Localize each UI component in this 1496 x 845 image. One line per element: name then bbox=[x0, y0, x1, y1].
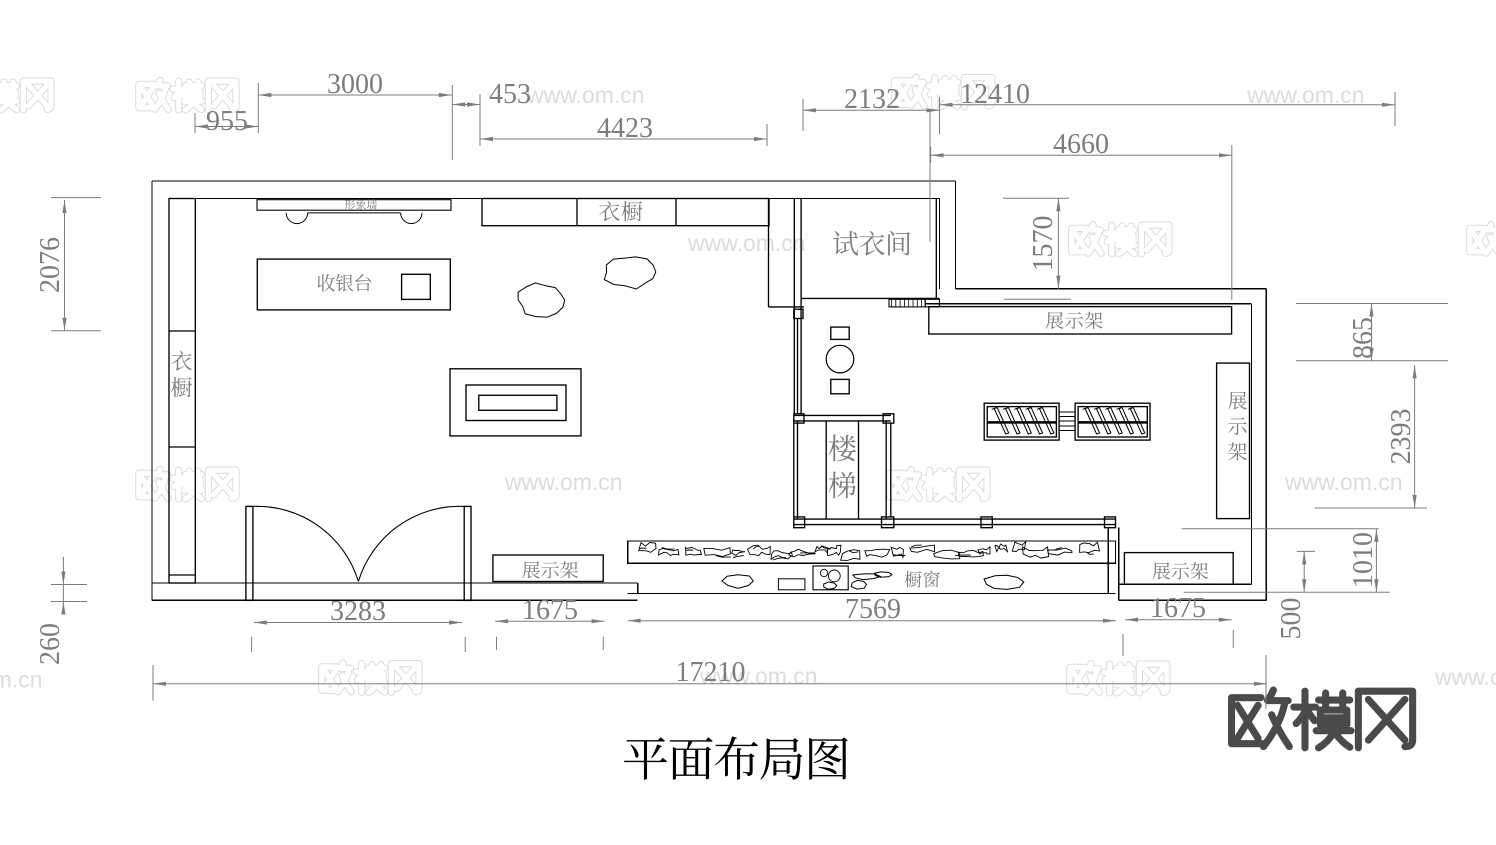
svg-text:7569: 7569 bbox=[845, 594, 901, 625]
svg-text:www.om.cn: www.om.cn bbox=[1246, 82, 1365, 108]
svg-text:1570: 1570 bbox=[1028, 216, 1059, 272]
svg-text:www.om.cn: www.om.cn bbox=[0, 667, 43, 693]
svg-text:www.om.cn: www.om.cn bbox=[1284, 469, 1403, 495]
svg-text:4660: 4660 bbox=[1053, 129, 1109, 160]
svg-text:4423: 4423 bbox=[597, 113, 653, 144]
svg-text:17210: 17210 bbox=[676, 657, 746, 688]
svg-text:www.om.cn: www.om.cn bbox=[504, 469, 623, 495]
svg-text:3283: 3283 bbox=[330, 596, 386, 627]
svg-text:www.om.cn: www.om.cn bbox=[687, 230, 806, 256]
svg-text:2076: 2076 bbox=[35, 237, 66, 293]
svg-text:2393: 2393 bbox=[1386, 409, 1417, 465]
svg-text:2132: 2132 bbox=[844, 84, 900, 115]
svg-text:500: 500 bbox=[1276, 598, 1307, 640]
svg-text:955: 955 bbox=[206, 106, 248, 137]
svg-text:12410: 12410 bbox=[960, 79, 1030, 110]
svg-text:865: 865 bbox=[1348, 317, 1379, 359]
svg-text:453: 453 bbox=[489, 79, 531, 110]
svg-text:1675: 1675 bbox=[1150, 593, 1206, 624]
svg-text:www.om.cn: www.om.cn bbox=[1434, 664, 1496, 690]
svg-text:260: 260 bbox=[35, 623, 66, 665]
svg-text:3000: 3000 bbox=[327, 69, 383, 100]
svg-text:1010: 1010 bbox=[1348, 532, 1379, 588]
svg-text:www.om.cn: www.om.cn bbox=[526, 82, 645, 108]
svg-text:1675: 1675 bbox=[522, 595, 578, 626]
